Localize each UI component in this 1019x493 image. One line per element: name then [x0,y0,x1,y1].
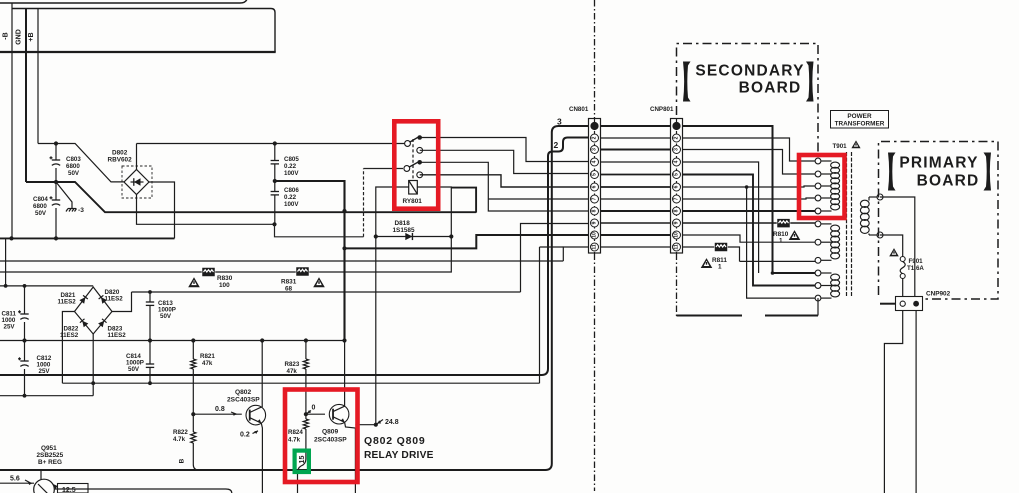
svg-text:0: 0 [312,405,316,412]
svg-text:Q802 Q809: Q802 Q809 [364,435,426,447]
svg-text:8: 8 [674,209,680,212]
svg-text:6: 6 [592,185,598,188]
svg-text:T901: T901 [833,143,848,150]
svg-text:10: 10 [592,232,598,238]
svg-text:Q809: Q809 [322,429,338,436]
svg-text:D818: D818 [395,220,411,227]
svg-text:6: 6 [674,185,680,188]
svg-text:47k: 47k [202,360,213,367]
svg-text:0.22: 0.22 [284,194,297,201]
svg-text:10: 10 [674,232,680,238]
svg-text:15: 15 [297,456,306,464]
svg-text:9: 9 [674,221,680,224]
svg-text:1S1585: 1S1585 [393,227,415,234]
svg-text:11ES2: 11ES2 [58,299,77,306]
svg-text:100V: 100V [284,170,299,177]
svg-text:11: 11 [674,244,680,250]
svg-text:25V: 25V [4,324,16,331]
svg-text:C804: C804 [33,196,48,203]
svg-text:2: 2 [592,136,598,139]
svg-text:50V: 50V [128,366,140,373]
svg-text:Q802: Q802 [235,389,251,396]
svg-text:4: 4 [592,160,598,163]
svg-text:8: 8 [592,209,598,212]
svg-text:0.8: 0.8 [215,406,225,413]
svg-text:50V: 50V [35,210,47,217]
svg-text:100: 100 [219,282,230,289]
svg-text:C803: C803 [66,156,81,163]
svg-text:R831: R831 [281,279,297,286]
svg-text:0.2: 0.2 [240,432,250,439]
svg-text:1: 1 [718,264,722,271]
svg-text:R830: R830 [217,275,233,282]
svg-text:7: 7 [592,197,598,200]
svg-text:R821: R821 [200,353,215,360]
svg-text:50V: 50V [160,313,172,320]
svg-text:47k: 47k [287,368,298,375]
svg-text:2SB2525: 2SB2525 [37,452,64,459]
svg-text:24.8: 24.8 [385,419,399,426]
svg-text:F901: F901 [909,258,924,265]
svg-text:R824: R824 [288,429,303,436]
svg-text:BOARD: BOARD [917,173,980,190]
svg-text:Q951: Q951 [41,445,57,452]
svg-text:50V: 50V [68,170,80,177]
svg-text:3: 3 [674,148,680,151]
svg-text:T1.6A: T1.6A [907,265,924,272]
svg-text:2SC403SP: 2SC403SP [314,437,347,444]
svg-text:PRIMARY: PRIMARY [899,155,978,172]
svg-text:R822: R822 [173,429,188,436]
svg-text:B+ REG: B+ REG [38,459,62,466]
svg-text:2: 2 [554,140,559,150]
svg-text:2SC403SP: 2SC403SP [227,397,260,404]
svg-text:-B: -B [3,32,10,39]
svg-text:C805: C805 [284,156,299,163]
svg-text:6800: 6800 [33,203,47,210]
svg-text:CNP801: CNP801 [650,106,674,113]
svg-text:CN801: CN801 [569,106,589,113]
svg-text:RELAY DRIVE: RELAY DRIVE [364,450,434,461]
svg-text:100V: 100V [284,201,299,208]
svg-text:1: 1 [779,238,783,245]
svg-text:RY801: RY801 [403,198,423,205]
svg-text:BOARD: BOARD [739,80,802,97]
svg-text:11ES2: 11ES2 [105,296,124,303]
svg-text:4.7k: 4.7k [173,436,186,443]
svg-text:CNP902: CNP902 [926,291,951,298]
svg-text:POWER: POWER [847,113,872,120]
svg-text:-3: -3 [78,207,84,214]
svg-text:4: 4 [674,160,680,163]
svg-text:C806: C806 [284,187,299,194]
svg-text:4.7k: 4.7k [288,437,301,444]
svg-text:5.6: 5.6 [10,476,20,483]
svg-text:RBV602: RBV602 [108,157,133,164]
svg-text:6800: 6800 [66,163,80,170]
svg-text:B: B [179,458,186,463]
svg-text:7: 7 [674,197,680,200]
svg-text:0.22: 0.22 [284,163,297,170]
svg-text:68: 68 [285,286,293,293]
svg-text:SECONDARY: SECONDARY [695,63,804,80]
svg-text:R823: R823 [285,361,300,368]
svg-text:11: 11 [592,244,598,250]
svg-text:TRANSFORMER: TRANSFORMER [835,121,885,128]
svg-text:+B: +B [28,32,35,41]
svg-text:5: 5 [592,173,598,176]
svg-text:GND: GND [16,29,23,45]
svg-text:3: 3 [592,148,598,151]
svg-text:2: 2 [674,136,680,139]
svg-text:12.5: 12.5 [62,487,76,493]
svg-text:3: 3 [557,117,562,127]
svg-text:5: 5 [674,173,680,176]
svg-text:11ES2: 11ES2 [108,332,127,339]
svg-text:D802: D802 [112,150,128,157]
svg-text:25V: 25V [39,368,51,375]
svg-text:9: 9 [592,221,598,224]
